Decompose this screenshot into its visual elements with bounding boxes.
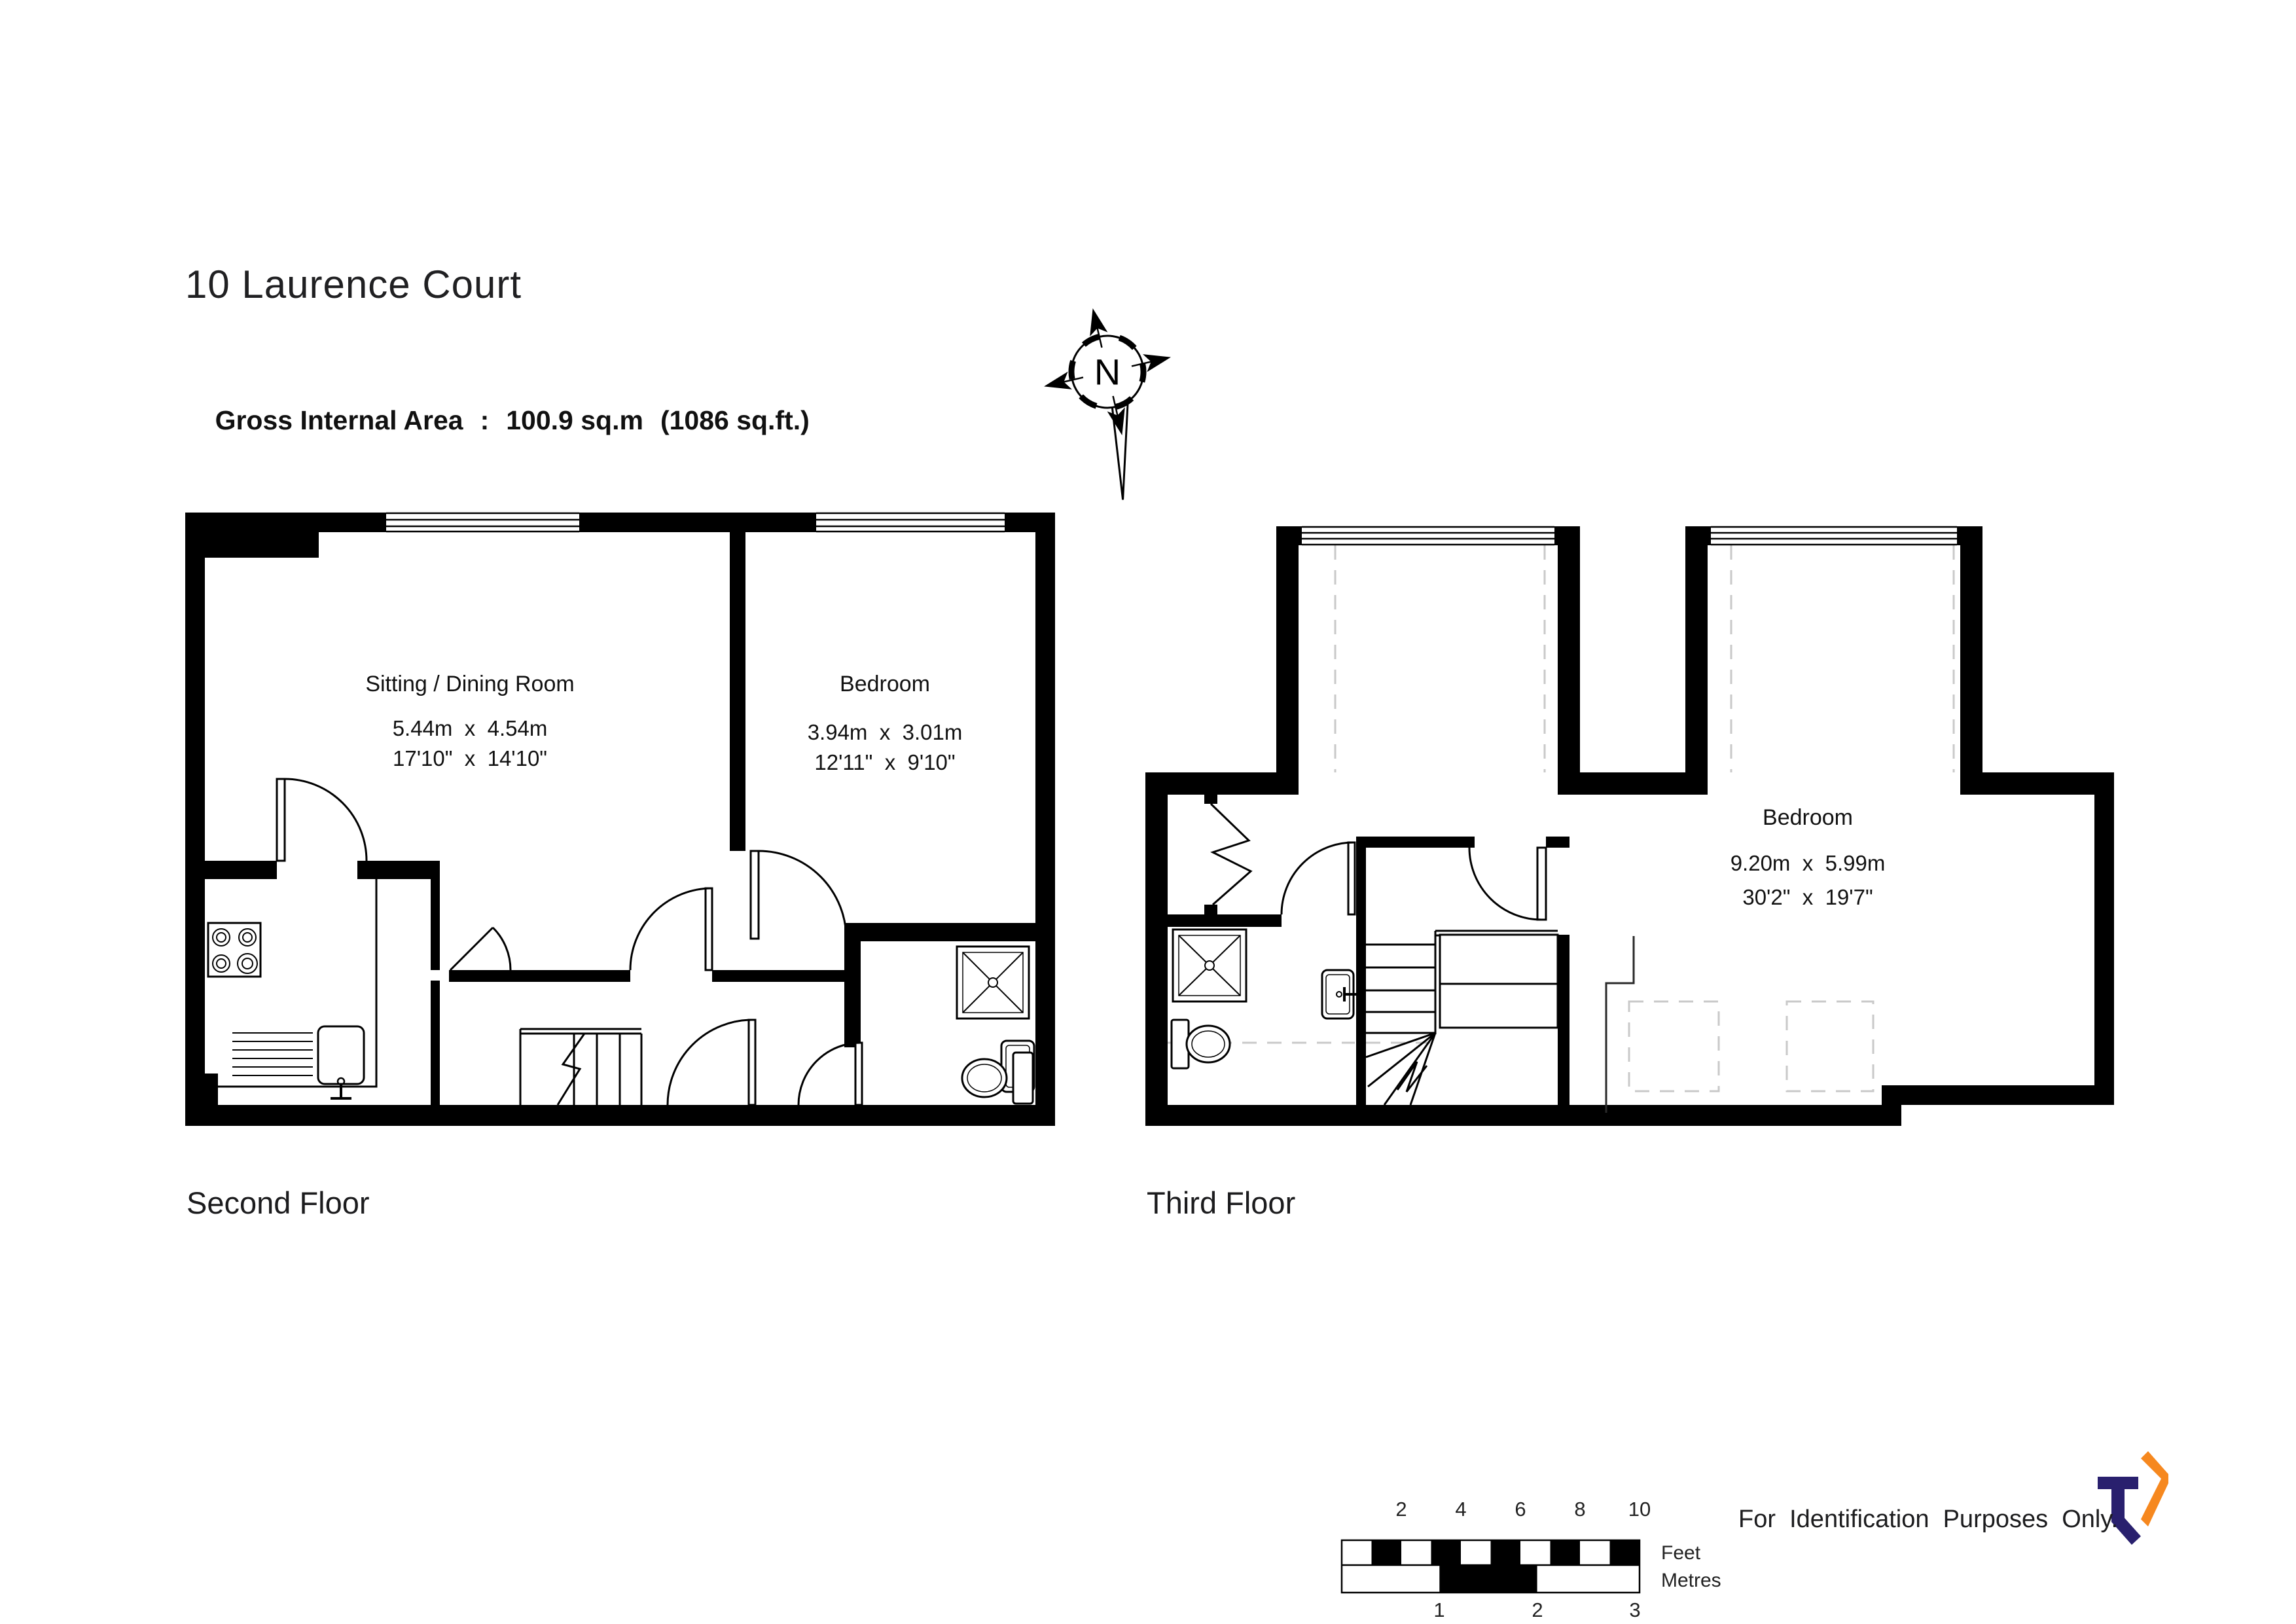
room-dims-metric: 9.20m x 5.99m	[1731, 851, 1886, 876]
metre-tick: 1	[1433, 1598, 1444, 1622]
toilet-icon	[1172, 1020, 1230, 1068]
page-title: 10 Laurence Court	[185, 262, 522, 307]
room-dims-imperial: 12'11" x 9'10"	[814, 750, 955, 775]
copyright-line: ©2025 Trueplan (UK) Limited (01892) 614 …	[1740, 1600, 2196, 1624]
compass-north-label: N	[1094, 351, 1121, 393]
room-dims-metric: 5.44m x 4.54m	[393, 716, 548, 741]
window-icon	[1302, 526, 1957, 545]
toilet-icon	[962, 1053, 1033, 1104]
second-floor-plan	[185, 513, 1055, 1126]
basin-icon	[1322, 970, 1356, 1019]
folding-door-icon	[1211, 804, 1251, 905]
floor-label-third: Third Floor	[1147, 1185, 1295, 1221]
stairs	[520, 1029, 641, 1105]
feet-tick: 10	[1628, 1498, 1651, 1521]
kitchen-units	[205, 879, 376, 1100]
third-floor-plan	[1145, 526, 2114, 1126]
floorplan-page: 10 Laurence Court Gross Internal Area:10…	[0, 0, 2296, 1624]
compass-needle-tail	[1089, 397, 1150, 503]
feet-tick: 6	[1515, 1498, 1526, 1521]
gross-internal-area: Gross Internal Area:100.9 sq.m(1086 sq.f…	[185, 374, 827, 467]
room-label: Bedroom	[1763, 805, 1853, 831]
area-metric: 100.9 sq.m	[506, 405, 643, 435]
metre-tick: 2	[1532, 1598, 1543, 1622]
north-compass-icon	[1030, 295, 1198, 511]
room-dims-imperial: 30'2" x 19'7"	[1742, 885, 1873, 910]
floor-label-second: Second Floor	[187, 1185, 370, 1221]
feet-tick: 4	[1455, 1498, 1466, 1521]
metres-unit-label: Metres	[1661, 1570, 1721, 1592]
bathroom-fixtures	[957, 947, 1034, 1104]
floorplan-graphics	[0, 0, 2296, 1624]
drainer-icon	[232, 1033, 313, 1075]
metre-tick: 3	[1629, 1598, 1640, 1622]
kitchen-sink-icon	[318, 1026, 364, 1100]
area-label: Gross Internal Area	[215, 405, 463, 435]
feet-tick: 2	[1395, 1498, 1407, 1521]
room-dims-imperial: 17'10" x 14'10"	[393, 746, 547, 771]
feet-unit-label: Feet	[1661, 1542, 1700, 1564]
shower-icon	[1173, 929, 1246, 1001]
room-dims-metric: 3.94m x 3.01m	[808, 720, 963, 745]
shower-icon	[957, 947, 1029, 1019]
room-label: Sitting / Dining Room	[365, 672, 574, 697]
purpose-note: For Identification Purposes Only.	[1738, 1506, 2118, 1534]
bathroom-fixtures	[1172, 929, 1356, 1068]
room-label: Bedroom	[840, 672, 930, 697]
scale-bar	[1342, 1540, 1640, 1593]
feet-tick: 8	[1574, 1498, 1585, 1521]
stairs	[1366, 931, 1634, 1113]
door-arcs	[1211, 804, 1546, 920]
area-imperial: (1086 sq.ft.)	[660, 405, 810, 435]
area-separator: :	[480, 405, 490, 435]
